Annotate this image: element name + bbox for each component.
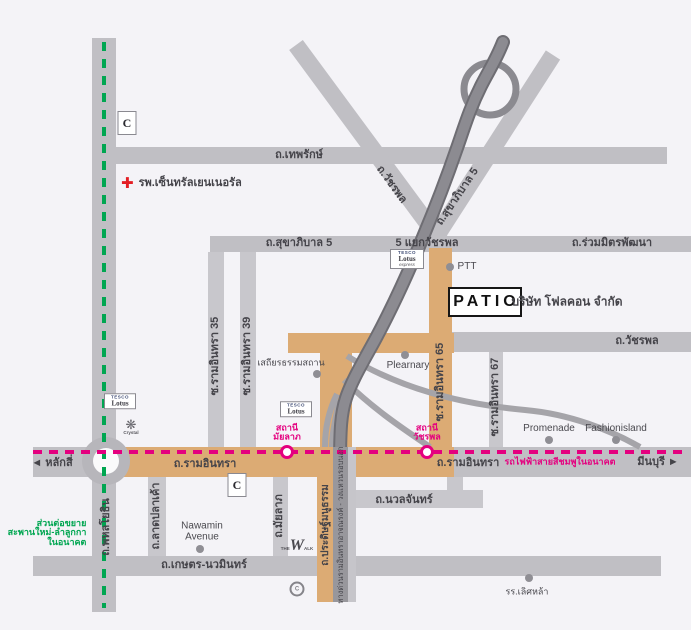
walk-script-w: W	[290, 537, 304, 554]
green-extension-line3: ในอนาคต	[8, 538, 87, 547]
company-label: บริษัท โฟลคอน จำกัด	[511, 296, 622, 309]
label-station-watcharaphon: สถานี วัชรพล	[413, 424, 440, 443]
promenade-dot	[545, 436, 553, 444]
label-pradit-manutham: ถ.ประดิษฐ์มนูธรรม	[321, 484, 332, 565]
label-sukhaphiban5: ถ.สุขาภิบาล 5	[266, 238, 332, 250]
tesco-lotus-logo-roundabout: TESCO Lotus	[104, 393, 136, 409]
label-lat-pla-khao: ถ.ลาดปลาเค้า	[151, 483, 163, 550]
label-expressway: ทางด่วนรามอินทราอาจณรงค์ - วงแหวนรอบนอก	[337, 447, 345, 604]
lertlah-label: รร.เลิศหล้า	[506, 587, 549, 596]
road-watcharaphon-diagonal	[296, 45, 442, 243]
label-raminthra-east: ถ.รามอินทรา	[437, 458, 500, 470]
hospital-poi: ✚ รพ.เซ็นทรัลเยนเนอรัล	[121, 176, 242, 191]
nawamin-avenue-dot	[196, 545, 204, 553]
tesco-lotus-logo-mayalap: TESCO Lotus	[280, 401, 312, 417]
label-mayalap-road: ถ.มัยลาภ	[274, 494, 286, 538]
label-minburi-arrow: มีนบุรี ►	[637, 457, 679, 469]
label-laksi-arrow: ◄ หลักสี่	[31, 458, 72, 470]
label-ruammit-phatthana: ถ.ร่วมมิตรพัฒนา	[572, 238, 652, 250]
map-canvas: ถ.เทพรักษ์ ถ.วัชรพล ถ.สุขาภิบาล 5 ถ.สุขา…	[0, 0, 691, 630]
label-soi-raminthra-65: ซ.รามอินทรา 65	[435, 343, 447, 422]
tesco-lotus-express-logo: TESCO Lotus express	[390, 249, 424, 269]
label-soi-raminthra-35: ซ.รามอินทรา 35	[210, 317, 222, 396]
sathira-label: เสถียรธรรมสถาน	[257, 358, 324, 367]
roundabout	[82, 437, 130, 485]
label-soi-raminthra-67: ซ.รามอินทรา 67	[490, 358, 502, 437]
plearnary-label: Plearnary	[387, 361, 430, 372]
label-pink-line-note: รถไฟฟ้าสายสีชมพูในอนาคต	[505, 457, 616, 466]
crystal-logo: ❋ Crystal	[123, 418, 138, 436]
c-ring-logo: C	[290, 582, 305, 597]
lertlah-dot	[525, 574, 533, 582]
label-soi-raminthra-39: ซ.รามอินทรา 39	[242, 317, 254, 396]
label-green-extension: ส่วนต่อขยาย สะพานใหม่-ลำลูกกา ในอนาคต	[8, 519, 87, 547]
station-marker-watcharaphon	[420, 445, 434, 459]
label-raminthra-west: ถ.รามอินทรา	[174, 459, 237, 471]
fashionisland-dot	[612, 436, 620, 444]
central-logo-north: C	[118, 111, 137, 135]
promenade-label: Promenade	[523, 424, 575, 435]
label-watcharaphon: ถ.วัชรพล	[615, 336, 658, 348]
expressway-south-frontage	[348, 447, 356, 602]
plearnary-dot	[401, 351, 409, 359]
label-kaset-nawamin: ถ.เกษตร-นวมินทร์	[161, 560, 247, 572]
ptt-label: PTT	[458, 262, 477, 273]
nawamin-avenue-label: Nawamin Avenue	[181, 522, 223, 543]
station-marker-mayalap	[280, 445, 294, 459]
central-logo-raminthra: C	[228, 473, 247, 497]
the-walk-logo: THEWALK	[281, 538, 313, 554]
fashionisland-label: Fashionisland	[585, 424, 647, 435]
label-nuanchan: ถ.นวลจันทร์	[375, 495, 432, 507]
label-phahonyothin: ถ.พหลโยธิน	[101, 498, 113, 556]
label-theprak: ถ.เทพรักษ์	[275, 150, 323, 162]
ptt-dot	[446, 263, 454, 271]
label-station-mayalap: สถานี มัยลาภ	[273, 424, 301, 443]
sathira-dot	[313, 370, 321, 378]
hospital-label: รพ.เซ็นทรัลเยนเนอรัล	[139, 178, 242, 190]
hospital-cross-icon: ✚	[121, 176, 134, 191]
